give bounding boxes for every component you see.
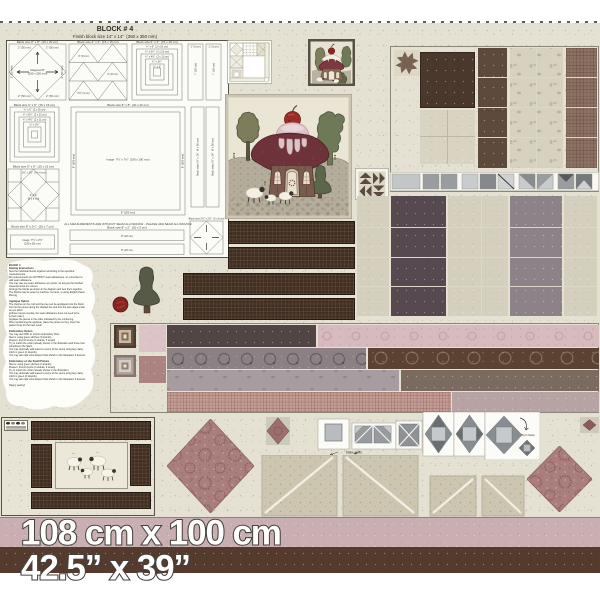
svg-text:2" (5 cm): 2" (5 cm): [192, 257, 202, 258]
svg-text:Block size 8" x 8" (20 x 20 c: Block size 8" x 8" (20 x 20 cm): [17, 40, 58, 44]
svg-text:¾" x 5¼" (2 x 13 cm): ¾" x 5¼" (2 x 13 cm): [145, 50, 169, 53]
svg-text:8" (200 mm): 8" (200 mm): [72, 154, 76, 168]
svg-text:¾" x 4½" (2 x 11 cm): ¾" x 4½" (2 x 11 cm): [23, 117, 47, 121]
svg-text:2" (50 mm): 2" (50 mm): [18, 94, 31, 98]
svg-text:Block size 6" x 6" (15 x 15 c: Block size 6" x 6" (15 x 15 cm): [14, 103, 55, 107]
svg-text:2" (50 mm): 2" (50 mm): [10, 66, 14, 79]
svg-text:Turn back: Turn back: [521, 433, 535, 437]
svg-text:2" (50 mm): 2" (50 mm): [46, 46, 59, 50]
svg-text:¾" x 3¾": ¾" x 3¾": [30, 123, 40, 126]
svg-text:¾" x 6" (2 x 15 cm): ¾" x 6" (2 x 15 cm): [146, 45, 168, 48]
svg-text:3" x 3": 3" x 3": [30, 193, 38, 197]
svg-text:ALL MEASUREMENTS ARE WITHOUT S: ALL MEASUREMENTS ARE WITHOUT SEAM ALLOWA…: [63, 222, 192, 226]
svg-text:Block size 6" x 6" (15 x 15 c: Block size 6" x 6" (15 x 15 cm): [136, 40, 177, 44]
svg-text:¾" x 3¾": ¾" x 3¾": [152, 60, 162, 63]
svg-text:(190 x 65 mm): (190 x 65 mm): [24, 242, 41, 246]
svg-text:7" (20 cm): 7" (20 cm): [212, 63, 216, 75]
svg-text:Image 7½" x 2½": Image 7½" x 2½": [22, 238, 43, 242]
svg-text:7" (20 cm): 7" (20 cm): [194, 63, 198, 75]
svg-text:Block size 8" x 2" (20 x 5 cm: Block size 8" x 2" (20 x 5 cm): [107, 226, 147, 230]
svg-text:3" (8 cm): 3" (8 cm): [78, 54, 89, 58]
svg-text:(8 x 8 cm): (8 x 8 cm): [28, 197, 40, 201]
svg-text:Block size 6" x 6" (15 x 15 c: Block size 6" x 6" (15 x 15 cm): [13, 165, 54, 169]
svg-text:1½" x 1½" (4 x 4 cm): 1½" x 1½" (4 x 4 cm): [22, 171, 46, 175]
svg-text:Block size 6" x 6" (15 x 15 c: Block size 6" x 6" (15 x 15 cm): [77, 40, 118, 44]
svg-text:Back strip 1½" x 14" (4 x 36: Back strip 1½" x 14" (4 x 36 cm): [211, 138, 215, 176]
svg-text:¾" x 4½" (2 x 11 cm): ¾" x 4½" (2 x 11 cm): [145, 54, 169, 58]
svg-text:2" (50 mm): 2" (50 mm): [60, 66, 64, 79]
svg-text:8" (20 cm): 8" (20 cm): [121, 234, 133, 238]
svg-text:8" (200 mm): 8" (200 mm): [121, 211, 135, 215]
svg-text:42.5” x 39”: 42.5” x 39”: [21, 549, 190, 588]
svg-text:(200 x 200 mm): (200 x 200 mm): [28, 71, 48, 75]
svg-text:Block size 8" x 2¾" (20 x 7 c: Block size 8" x 2¾" (20 x 7 cm): [11, 225, 53, 229]
svg-text:¾" x 3": ¾" x 3": [153, 65, 161, 68]
svg-text:¾" x 6" (2 x 15 cm): ¾" x 6" (2 x 15 cm): [24, 108, 46, 111]
svg-text:108 cm x 100 cm: 108 cm x 100 cm: [21, 514, 281, 553]
svg-text:8" (20 cm): 8" (20 cm): [121, 248, 133, 252]
svg-text:8" (200 mm): 8" (200 mm): [181, 154, 185, 168]
svg-text:3" (8 cm): 3" (8 cm): [107, 72, 118, 76]
svg-text:2" (50 mm): 2" (50 mm): [18, 46, 31, 50]
svg-text:Block size 2½" x 2½" (6 x 6 c: Block size 2½" x 2½" (6 x 6 cm): [189, 217, 225, 221]
svg-text:1½" (4 cm): 1½" (4 cm): [77, 91, 90, 95]
svg-text:2" (50 mm): 2" (50 mm): [46, 94, 59, 98]
svg-text:Back strip 1½" x 14" (4 x 36: Back strip 1½" x 14" (4 x 36 cm): [196, 138, 200, 176]
svg-text:Image 7½" x 7½" (190 x 190 m: Image 7½" x 7½" (190 x 190 mm): [106, 158, 149, 162]
svg-text:¾" x 5¼" (2 x 13 cm): ¾" x 5¼" (2 x 13 cm): [23, 113, 47, 116]
svg-text:1" (3 cm): 1" (3 cm): [190, 45, 200, 48]
svg-text:Block size 8" x 8" (20 x 20 c: Block size 8" x 8" (20 x 20 cm): [107, 103, 148, 107]
svg-text:1" (3 cm): 1" (3 cm): [208, 45, 218, 48]
svg-text:2" (5 cm): 2" (5 cm): [209, 257, 219, 258]
